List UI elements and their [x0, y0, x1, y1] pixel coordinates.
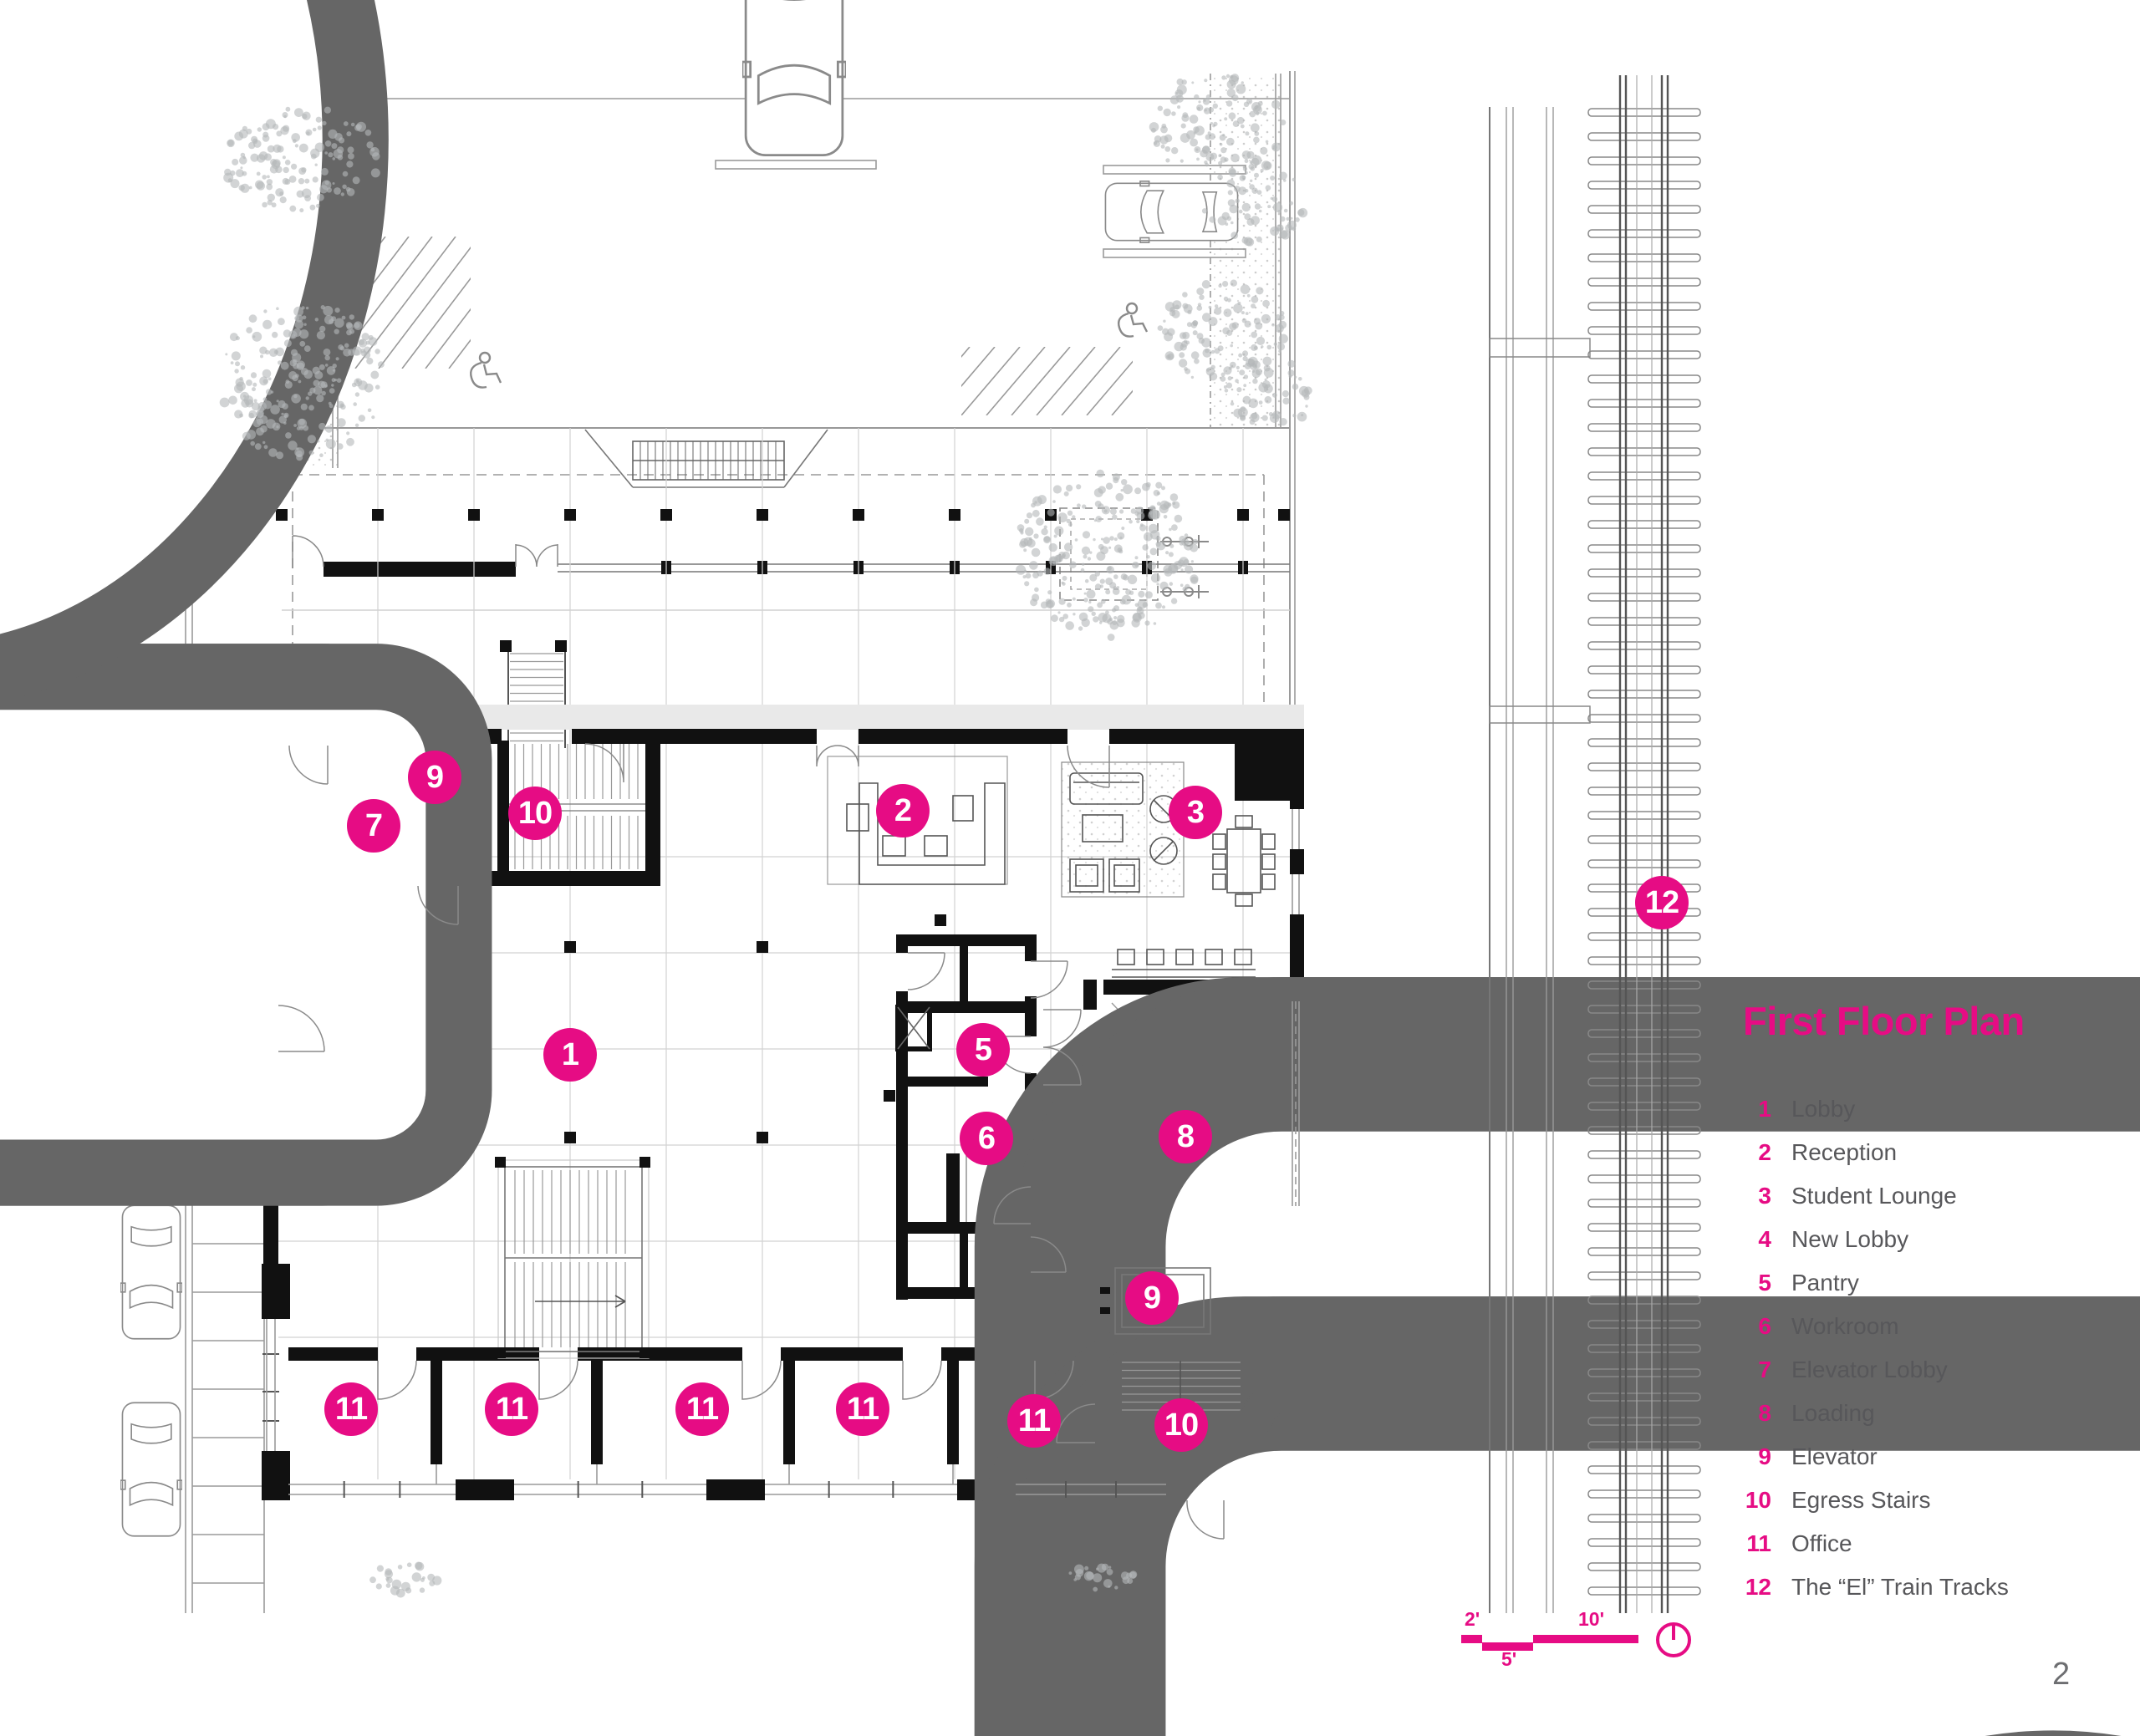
room-marker-office-1: 11: [324, 1382, 378, 1436]
room-marker-office-5: 11: [1007, 1394, 1061, 1448]
legend-item: 4 New Lobby: [1743, 1226, 2102, 1270]
room-marker-lobby: 1: [543, 1028, 597, 1082]
legend-items: 1 Lobby 2 Reception 3 Student Lounge 4 N…: [1743, 1096, 2102, 1617]
room-marker-office-4: 11: [836, 1382, 889, 1436]
legend-item: 11 Office: [1743, 1530, 2102, 1574]
legend-item: 2 Reception: [1743, 1139, 2102, 1183]
lobby-stair: [495, 1157, 650, 1358]
room-marker-workroom: 6: [960, 1112, 1013, 1165]
legend-item-number: 8: [1743, 1400, 1771, 1427]
legend-item-label: Office: [1791, 1530, 1852, 1557]
legend-item-label: Loading: [1791, 1400, 1875, 1427]
legend-item-number: 1: [1743, 1096, 1771, 1123]
room-marker-egress-stairs-south: 10: [1154, 1398, 1208, 1452]
room-marker-egress-stairs-north: 10: [508, 787, 562, 840]
room-marker-loading: 8: [1159, 1110, 1212, 1163]
legend-item-label: Pantry: [1791, 1270, 1859, 1296]
bar-counter: [1112, 949, 1256, 977]
scale-segment-5ft: [1482, 1642, 1533, 1651]
floor-plan-sheet: 1235678991010111111111112 First Floor Pl…: [0, 0, 2140, 1736]
legend-item-label: The “El” Train Tracks: [1791, 1574, 2009, 1601]
page-number: 2: [2052, 1657, 2070, 1693]
legend-item-number: 9: [1743, 1443, 1771, 1470]
entry-canopy: [585, 430, 828, 487]
legend-item-label: Egress Stairs: [1791, 1487, 1931, 1514]
room-marker-reception: 2: [876, 784, 930, 837]
legend-item-label: Reception: [1791, 1139, 1897, 1166]
legend-item-label: Elevator: [1791, 1443, 1878, 1470]
parked-car-street-1: [120, 1205, 182, 1339]
room-marker-elevator-south: 9: [1125, 1271, 1179, 1325]
parked-car-street-2: [120, 1403, 182, 1536]
legend-item-number: 11: [1743, 1530, 1771, 1557]
parked-car-top: [742, 0, 846, 155]
legend-item-number: 3: [1743, 1183, 1771, 1209]
room-marker-pantry: 5: [956, 1023, 1010, 1077]
room-marker-student-lounge: 3: [1169, 786, 1222, 839]
room-marker-el-train-tracks: 12: [1635, 876, 1689, 929]
legend-item: 9 Elevator: [1743, 1443, 2102, 1487]
scale-segment-10ft: [1533, 1635, 1638, 1643]
legend-item-label: Lobby: [1791, 1096, 1855, 1123]
legend-item: 3 Student Lounge: [1743, 1183, 2102, 1226]
scale-label-10ft: 10': [1578, 1608, 1604, 1631]
legend-item-number: 12: [1743, 1574, 1771, 1601]
legend-item: 5 Pantry: [1743, 1270, 2102, 1313]
legend-item-label: New Lobby: [1791, 1226, 1908, 1253]
legend-item-label: Workroom: [1791, 1313, 1899, 1340]
legend-item: 8 Loading: [1743, 1400, 2102, 1443]
plaza-stair: [500, 640, 567, 748]
legend-item: 12 The “El” Train Tracks: [1743, 1574, 2102, 1617]
room-marker-office-3: 11: [675, 1382, 729, 1436]
parked-car-right: [1105, 181, 1237, 242]
legend-item: 10 Egress Stairs: [1743, 1487, 2102, 1530]
legend: First Floor Plan 1 Lobby 2 Reception 3 S…: [1743, 1001, 2102, 1617]
scale-segment-2ft: [1461, 1635, 1482, 1643]
legend-item: 7 Elevator Lobby: [1743, 1357, 2102, 1400]
room-marker-office-2: 11: [485, 1382, 538, 1436]
legend-item-label: Student Lounge: [1791, 1183, 1957, 1209]
legend-item-label: Elevator Lobby: [1791, 1357, 1948, 1383]
legend-item: 6 Workroom: [1743, 1313, 2102, 1357]
page-title: First Floor Plan: [1743, 1001, 2102, 1041]
legend-item-number: 2: [1743, 1139, 1771, 1166]
legend-item-number: 5: [1743, 1270, 1771, 1296]
room-marker-elevator-lobby: 7: [347, 799, 400, 853]
legend-item-number: 10: [1743, 1487, 1771, 1514]
legend-item-number: 7: [1743, 1357, 1771, 1383]
scale-label-5ft: 5': [1501, 1648, 1516, 1671]
room-marker-elevator-north: 9: [408, 751, 461, 804]
legend-item: 1 Lobby: [1743, 1096, 2102, 1139]
legend-item-number: 6: [1743, 1313, 1771, 1340]
legend-item-number: 4: [1743, 1226, 1771, 1253]
scale-label-2ft: 2': [1465, 1608, 1480, 1631]
scale-bar: 2' 10' 5': [1455, 1605, 1722, 1697]
